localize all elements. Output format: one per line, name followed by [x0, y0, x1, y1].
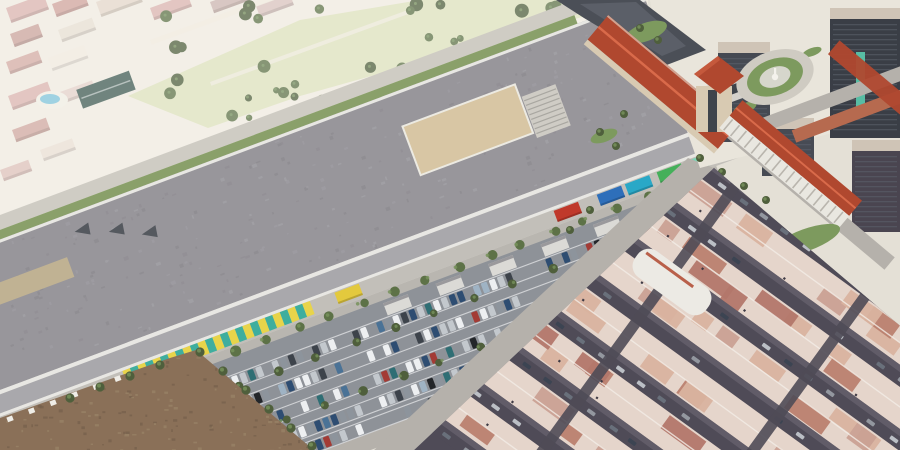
- dirt-texture: [220, 420, 222, 423]
- dirt-texture: [6, 421, 8, 423]
- dirt-texture: [196, 357, 200, 358]
- tower-floor-line: [833, 34, 897, 35]
- dirt-texture: [153, 422, 157, 423]
- dirt-texture: [81, 426, 84, 429]
- dirt-texture: [23, 419, 26, 421]
- street-tree: [567, 227, 570, 230]
- dirt-texture: [127, 390, 131, 392]
- dirt-texture: [209, 425, 211, 427]
- aerial-render: [0, 0, 900, 450]
- tower-floor-line: [855, 166, 897, 167]
- street-tree: [697, 155, 700, 158]
- dirt-texture: [47, 430, 49, 432]
- street-tree: [127, 373, 131, 377]
- tower-floor-line: [833, 24, 897, 25]
- dirt-texture: [123, 432, 125, 434]
- street-tree: [655, 37, 658, 40]
- dirt-texture: [95, 414, 99, 416]
- dirt-texture: [266, 416, 269, 418]
- dirt-texture: [169, 405, 173, 407]
- dirt-texture: [102, 444, 104, 445]
- tower-floor-line: [855, 221, 897, 222]
- dirt-texture: [166, 361, 169, 364]
- tower-floor-line: [855, 156, 897, 157]
- tower-windows: [708, 90, 717, 132]
- dirt-texture: [125, 431, 129, 434]
- dirt-texture: [268, 421, 272, 423]
- tower-floor-line: [855, 196, 897, 197]
- dirt-texture: [118, 432, 121, 434]
- dirt-texture: [152, 390, 155, 393]
- dirt-texture: [275, 421, 279, 423]
- tower-floor-line: [855, 216, 897, 217]
- dirt-texture: [209, 429, 213, 431]
- dirt-texture: [231, 444, 235, 447]
- tower-floor-line: [833, 39, 897, 40]
- dirt-texture: [83, 432, 86, 435]
- dirt-texture: [164, 425, 167, 428]
- dirt-texture: [255, 419, 258, 421]
- monument: [774, 68, 776, 77]
- dirt-texture: [132, 434, 136, 435]
- dirt-texture: [142, 432, 144, 434]
- dirt-texture: [23, 425, 27, 428]
- dirt-texture: [215, 368, 217, 371]
- dirt-texture: [108, 439, 111, 442]
- dirt-texture: [147, 429, 150, 431]
- dirt-texture: [176, 358, 180, 359]
- dirt-texture: [16, 446, 19, 447]
- dirt-texture: [102, 411, 105, 413]
- dirt-texture: [31, 424, 33, 427]
- dirt-texture: [99, 416, 101, 419]
- street-tree: [266, 406, 270, 410]
- dirt-texture: [59, 420, 63, 423]
- tower-floor-line: [855, 181, 897, 182]
- dirt-texture: [164, 409, 168, 411]
- street-tree: [719, 169, 722, 172]
- dirt-texture: [125, 392, 128, 394]
- tower-floor-line: [855, 206, 897, 207]
- street-tree: [763, 197, 766, 200]
- dirt-texture: [283, 444, 287, 446]
- tower-floor-line: [855, 226, 897, 227]
- dirt-texture: [176, 425, 178, 426]
- street-tree: [220, 368, 224, 372]
- dirt-texture: [281, 429, 285, 432]
- dirt-texture: [157, 399, 159, 401]
- dirt-texture: [193, 442, 197, 444]
- dirt-texture: [214, 385, 218, 387]
- dirt-texture: [174, 407, 178, 410]
- tower-floor-line: [855, 161, 897, 162]
- dirt-texture: [173, 419, 177, 422]
- dirt-texture: [215, 389, 217, 391]
- dirt-texture: [124, 434, 129, 437]
- street-tree: [637, 25, 640, 28]
- dirt-texture: [235, 388, 237, 389]
- tower-roof-deck: [718, 42, 770, 53]
- street-tree: [613, 143, 616, 146]
- street-tree: [741, 183, 744, 186]
- dirt-texture: [172, 384, 175, 386]
- dirt-texture: [40, 406, 44, 409]
- tower-floor-line: [833, 29, 897, 30]
- tower-floor-line: [855, 186, 897, 187]
- tower-floor-line: [855, 211, 897, 212]
- dirt-texture: [254, 435, 257, 436]
- street-tree: [197, 349, 201, 353]
- dirt-texture: [187, 375, 190, 376]
- dirt-texture: [171, 429, 173, 432]
- dirt-texture: [129, 394, 132, 395]
- dirt-texture: [203, 378, 206, 381]
- dirt-texture: [135, 394, 138, 396]
- dirt-texture: [168, 438, 171, 440]
- street-tree: [288, 425, 292, 429]
- dirt-texture: [288, 443, 292, 445]
- dirt-texture: [7, 446, 9, 448]
- dirt-texture: [81, 411, 86, 413]
- dirt-texture: [55, 447, 59, 450]
- dirt-texture: [91, 444, 93, 445]
- tower-floor-line: [855, 191, 897, 192]
- aerial-scene: [0, 0, 900, 450]
- dirt-texture: [189, 411, 193, 413]
- dirt-texture: [262, 425, 266, 426]
- dirt-texture: [122, 411, 126, 413]
- dirt-texture: [170, 399, 173, 402]
- tower-roof-deck: [852, 140, 900, 151]
- dirt-texture: [165, 420, 168, 422]
- dirt-texture: [231, 395, 235, 398]
- dirt-texture: [166, 365, 168, 367]
- dirt-texture: [89, 402, 92, 405]
- dirt-texture: [95, 424, 99, 426]
- street-tree: [621, 111, 624, 114]
- street-tree: [67, 395, 71, 399]
- street-tree: [97, 384, 101, 388]
- dirt-texture: [246, 397, 248, 398]
- dirt-texture: [279, 447, 281, 448]
- street-tree: [597, 129, 600, 132]
- dirt-texture: [50, 438, 52, 440]
- dirt-texture: [243, 433, 246, 436]
- tower-floor-line: [833, 129, 897, 130]
- street-tree: [587, 207, 590, 210]
- dirt-texture: [164, 392, 168, 394]
- dirt-texture: [253, 426, 256, 428]
- dirt-texture: [232, 406, 235, 408]
- tower-roof-deck: [830, 8, 900, 19]
- tower-floor-line: [855, 171, 897, 172]
- dirt-texture: [49, 417, 53, 419]
- tower-floor-line: [855, 176, 897, 177]
- dirt-texture: [129, 415, 132, 417]
- dirt-texture: [145, 415, 147, 417]
- dirt-texture: [59, 409, 63, 412]
- dirt-texture: [115, 390, 119, 392]
- dirt-texture: [230, 432, 232, 433]
- dirt-texture: [131, 397, 134, 398]
- street-tree: [157, 362, 161, 366]
- dirt-texture: [118, 412, 121, 414]
- dirt-texture: [78, 421, 81, 424]
- dirt-texture: [35, 425, 38, 427]
- dirt-texture: [144, 373, 147, 375]
- dirt-texture: [183, 417, 187, 419]
- dirt-texture: [276, 424, 281, 425]
- dirt-texture: [140, 423, 143, 426]
- dirt-texture: [43, 417, 48, 419]
- dirt-texture: [21, 430, 23, 432]
- street-tree: [243, 387, 247, 391]
- street-tree: [309, 443, 313, 447]
- dirt-texture: [237, 418, 240, 421]
- dirt-texture: [88, 415, 91, 417]
- dirt-texture: [74, 402, 78, 404]
- dirt-texture: [172, 438, 176, 440]
- dirt-texture: [194, 422, 198, 424]
- dirt-texture: [134, 447, 136, 450]
- dirt-texture: [298, 440, 300, 443]
- dirt-texture: [222, 401, 226, 403]
